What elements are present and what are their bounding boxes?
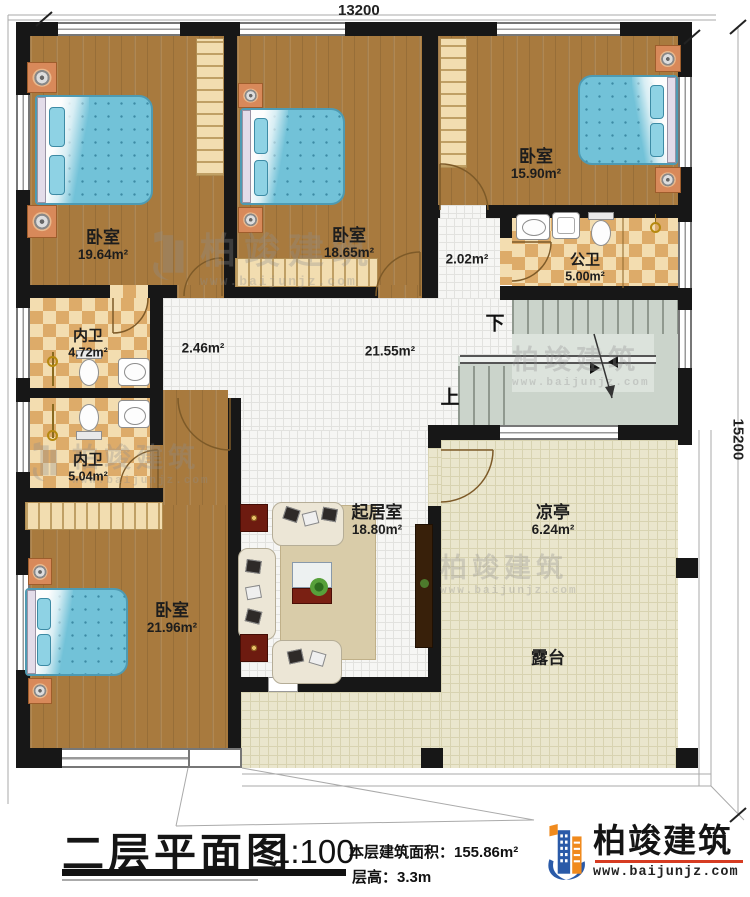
room-label-public-bath: 公卫5.00m² — [565, 253, 605, 284]
stair-up-label: 上 — [440, 383, 459, 410]
room-label-inner-bath-2: 内卫5.04m² — [68, 453, 108, 484]
watermark-url: www.baijunjz.com — [440, 585, 578, 597]
dimension-right: 15200 — [730, 419, 747, 459]
watermark: 柏竣建筑 www.baijunjz.com — [440, 546, 578, 597]
watermark: 柏竣建筑 www.baijunjz.com — [30, 436, 210, 487]
watermark-name: 柏竣建筑 — [440, 546, 578, 585]
room-label-hall: 21.55m² — [365, 343, 415, 358]
watermark-logo-icon — [30, 442, 64, 482]
company-logo-icon — [543, 824, 589, 882]
company-name: 柏竣建筑 — [593, 824, 743, 857]
floor-area-note: 本层建筑面积：155.86m² — [349, 841, 518, 862]
watermark: 柏竣建筑 www.baijunjz.com — [512, 338, 650, 389]
room-label-inner-bath-1: 内卫4.72m² — [68, 329, 108, 360]
floor-plan-canvas: 13200 15200 卧室19.64m² 卧室18.65m² 卧室15.90m… — [0, 0, 750, 897]
dimension-top: 13200 — [338, 2, 380, 19]
eave-lines — [8, 15, 744, 826]
watermark-name: 柏竣建筑 — [512, 338, 650, 377]
floor-height-note: 层高：3.3m — [352, 866, 431, 887]
room-label-terrace: 露台 — [531, 648, 565, 667]
drawing-scale: 1:100 — [272, 833, 355, 871]
watermark-url: www.baijunjz.com — [512, 377, 650, 389]
room-label-hall-west: 2.46m² — [182, 340, 225, 355]
room-label-bedroom-b: 卧室21.96m² — [147, 601, 197, 635]
company-url: www.baijunjz.com — [593, 865, 743, 880]
dimension-ticks — [36, 12, 746, 822]
room-label-bedroom-tr: 卧室15.90m² — [511, 147, 561, 181]
stair-down-label: 下 — [485, 309, 504, 336]
room-label-corridor-small: 2.02m² — [446, 251, 489, 266]
watermark-logo-icon — [150, 231, 192, 281]
logo-red-rule — [595, 860, 743, 863]
company-logo: 柏竣建筑 www.baijunjz.com — [543, 824, 743, 882]
title-underline-thin — [62, 879, 258, 881]
room-label-living: 起居室18.80m² — [352, 503, 403, 537]
room-label-pavilion: 凉亭6.24m² — [532, 503, 575, 537]
watermark-url: www.baijunjz.com — [200, 274, 376, 289]
room-label-bedroom-tm: 卧室18.65m² — [324, 226, 374, 260]
room-label-bedroom-tl: 卧室19.64m² — [78, 228, 128, 262]
